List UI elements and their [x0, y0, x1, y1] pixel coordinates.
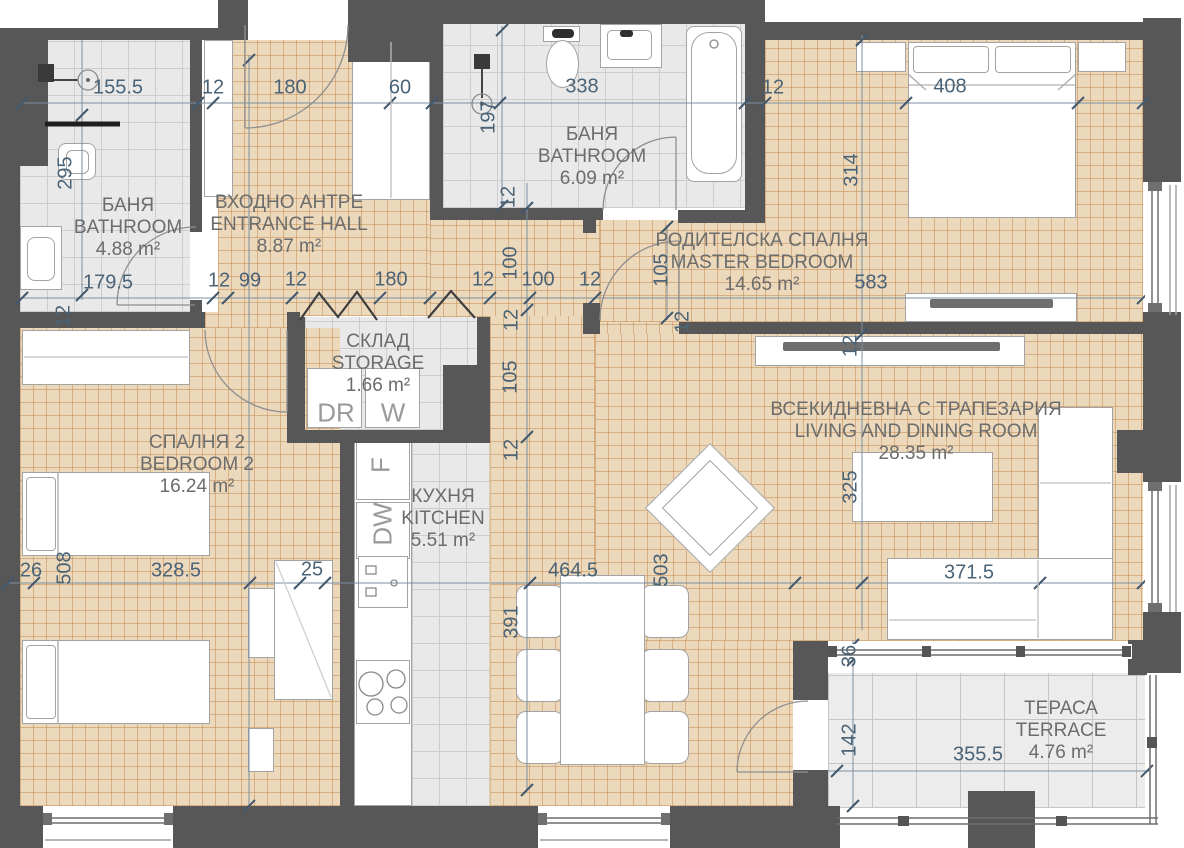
room-name-bg: РОДИТЕЛСКА СПАЛНЯ — [655, 230, 868, 252]
appliance-label-f: F — [366, 457, 397, 473]
dimension-label: 583 — [854, 272, 887, 295]
dimension-label: 12 — [501, 309, 524, 331]
room-name-bg: ТЕРАСА — [1016, 698, 1107, 720]
room-label-bathroom-1: БАНЯBATHROOM4.88 m² — [74, 195, 182, 261]
dimension-label: 464.5 — [548, 560, 598, 583]
dimension-label: 325 — [840, 470, 863, 503]
dimension-label: 328.5 — [151, 560, 201, 583]
dimension-label: 338 — [565, 76, 598, 99]
dimension-label: 12 — [208, 270, 230, 293]
dimension-label: 179.5 — [83, 272, 133, 295]
room-name-bg: КУХНЯ — [401, 486, 484, 508]
dimension-label: 12 — [840, 335, 863, 357]
room-area: 8.87 m² — [210, 236, 367, 258]
room-area: 1.66 m² — [332, 375, 425, 397]
floor-plan: БАНЯBATHROOM4.88 m²ВХОДНО АНТРЕENTRANCE … — [0, 0, 1184, 848]
room-label-bathroom-2: БАНЯBATHROOM6.09 m² — [538, 124, 646, 190]
dimension-label: 142 — [839, 723, 862, 756]
room-label-kitchen: КУХНЯKITCHEN5.51 m² — [401, 486, 484, 552]
dimension-label: 180 — [374, 269, 407, 292]
dimension-label: 314 — [841, 153, 864, 186]
room-area: 14.65 m² — [655, 274, 868, 296]
room-name-en: BATHROOM — [538, 146, 646, 168]
room-label-living-dining: ВСЕКИДНЕВНА С ТРАПЕЗАРИЯLIVING AND DININ… — [770, 399, 1061, 465]
dimension-label: 105 — [651, 253, 674, 286]
appliance-label-dr: DR — [317, 398, 355, 429]
room-area: 4.88 m² — [74, 239, 182, 261]
dimension-label: 508 — [54, 551, 77, 584]
dimension-label: 180 — [273, 77, 306, 100]
dimension-label: 12 — [498, 186, 521, 208]
room-label-bedroom-2: СПАЛНЯ 2BEDROOM 216.24 m² — [140, 432, 254, 498]
dimension-label: 295 — [55, 156, 78, 189]
dimension-label: 60 — [389, 77, 411, 100]
dimension-label: 100 — [500, 246, 523, 279]
room-name-bg: СКЛАД — [332, 331, 425, 353]
dimension-label: 99 — [239, 270, 261, 293]
dimension-label: 371.5 — [944, 562, 994, 585]
room-name-bg: СПАЛНЯ 2 — [140, 432, 254, 454]
room-name-bg: БАНЯ — [74, 195, 182, 217]
dimension-label: 36 — [839, 645, 862, 667]
room-name-en: STORAGE — [332, 353, 425, 375]
dimension-label: 197 — [478, 100, 501, 133]
dimension-label: 355.5 — [953, 744, 1003, 767]
dimension-label: 503 — [651, 553, 674, 586]
room-label-entrance-hall: ВХОДНО АНТРЕENTRANCE HALL8.87 m² — [210, 192, 367, 258]
dimension-label: 100 — [521, 269, 554, 292]
room-area: 28.35 m² — [770, 443, 1061, 465]
room-name-bg: БАНЯ — [538, 124, 646, 146]
dimension-label: 12 — [501, 439, 524, 461]
dimension-label: 12 — [579, 269, 601, 292]
labels-layer: БАНЯBATHROOM4.88 m²ВХОДНО АНТРЕENTRANCE … — [0, 0, 1184, 848]
room-name-en: BEDROOM 2 — [140, 454, 254, 476]
room-name-en: LIVING AND DINING ROOM — [770, 421, 1061, 443]
dimension-label: 105 — [500, 360, 523, 393]
room-name-bg: ВХОДНО АНТРЕ — [210, 192, 367, 214]
room-label-master-bedroom: РОДИТЕЛСКА СПАЛНЯMASTER BEDROOM14.65 m² — [655, 230, 868, 296]
room-area: 5.51 m² — [401, 530, 484, 552]
dimension-label: 155.5 — [93, 77, 143, 100]
appliance-label-dw: DW — [368, 502, 399, 545]
room-name-en: ENTRANCE HALL — [210, 214, 367, 236]
room-area: 6.09 m² — [538, 168, 646, 190]
room-name-en: TERRACE — [1016, 720, 1107, 742]
room-label-storage: СКЛАДSTORAGE1.66 m² — [332, 331, 425, 397]
dimension-label: 391 — [501, 605, 524, 638]
room-name-bg: ВСЕКИДНЕВНА С ТРАПЕЗАРИЯ — [770, 399, 1061, 421]
room-label-terrace: ТЕРАСАTERRACE4.76 m² — [1016, 698, 1107, 764]
dimension-label: 12 — [285, 269, 307, 292]
room-area: 16.24 m² — [140, 476, 254, 498]
dimension-label: 12 — [472, 269, 494, 292]
room-area: 4.76 m² — [1016, 742, 1107, 764]
appliance-label-w: W — [381, 398, 406, 429]
room-name-en: BATHROOM — [74, 217, 182, 239]
dimension-label: 12 — [202, 77, 224, 100]
dimension-label: 408 — [933, 76, 966, 99]
dimension-label: 25 — [301, 559, 323, 582]
dimension-label: 12 — [762, 77, 784, 100]
room-name-en: KITCHEN — [401, 508, 484, 530]
dimension-label: 26 — [20, 560, 42, 583]
dimension-label: 12 — [672, 311, 695, 333]
room-name-en: MASTER BEDROOM — [655, 252, 868, 274]
dimension-label: 12 — [53, 305, 76, 327]
